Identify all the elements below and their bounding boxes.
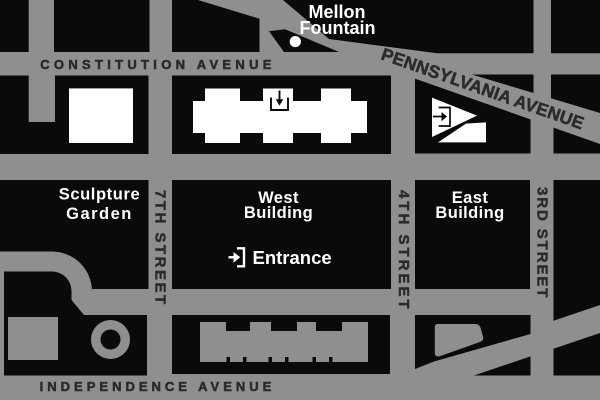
svg-text:CONSTITUTION AVENUE: CONSTITUTION AVENUE bbox=[40, 57, 276, 72]
svg-text:Garden: Garden bbox=[66, 205, 133, 223]
svg-text:Building: Building bbox=[244, 204, 313, 222]
svg-text:Building: Building bbox=[435, 204, 504, 222]
svg-text:4TH STREET: 4TH STREET bbox=[395, 190, 412, 312]
svg-text:Sculpture: Sculpture bbox=[59, 186, 141, 204]
svg-text:INDEPENDENCE AVENUE: INDEPENDENCE AVENUE bbox=[40, 379, 276, 394]
svg-text:3RD STREET: 3RD STREET bbox=[534, 187, 551, 299]
svg-text:7TH STREET: 7TH STREET bbox=[152, 190, 169, 307]
svg-text:Entrance: Entrance bbox=[253, 247, 332, 268]
svg-text:Fountain: Fountain bbox=[300, 18, 376, 38]
